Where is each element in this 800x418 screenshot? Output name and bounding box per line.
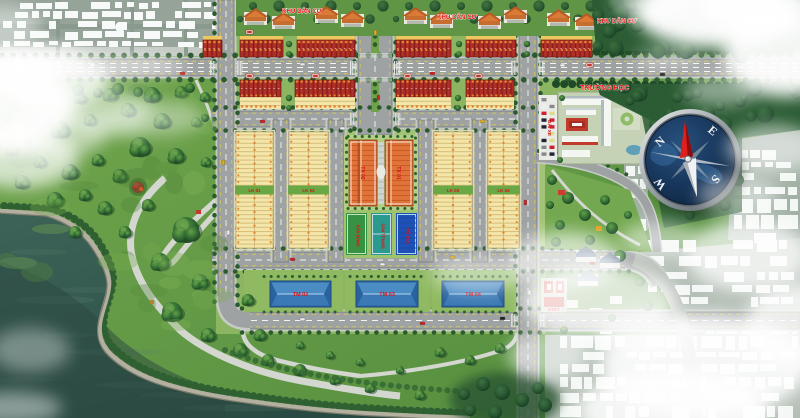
- svg-text:LK 02: LK 02: [302, 188, 315, 193]
- svg-text:KHU DÂN CƯ: KHU DÂN CƯ: [282, 8, 323, 15]
- svg-text:TM 02: TM 02: [293, 292, 309, 298]
- svg-text:TM 03: TM 03: [379, 292, 395, 298]
- svg-text:SÂN BÓNG: SÂN BÓNG: [356, 225, 361, 248]
- svg-text:LK 03: LK 03: [447, 188, 460, 193]
- svg-text:TM 04: TM 04: [465, 292, 482, 298]
- svg-text:KHU DÂN CƯ: KHU DÂN CƯ: [437, 14, 478, 21]
- svg-text:TX 02: TX 02: [359, 166, 365, 180]
- svg-text:LK 01: LK 01: [248, 188, 261, 193]
- svg-text:SÂN TENNIS: SÂN TENNIS: [381, 223, 386, 249]
- svg-text:TRƯỜNG HỌC: TRƯỜNG HỌC: [580, 83, 629, 92]
- svg-text:HỒ BƠI: HỒ BƠI: [406, 228, 411, 243]
- svg-text:KHU DÂN CƯ: KHU DÂN CƯ: [597, 18, 638, 25]
- svg-text:TX 01: TX 01: [395, 166, 401, 180]
- svg-text:LK 04: LK 04: [497, 188, 510, 193]
- svg-text:BÃI XE: BÃI XE: [546, 120, 553, 137]
